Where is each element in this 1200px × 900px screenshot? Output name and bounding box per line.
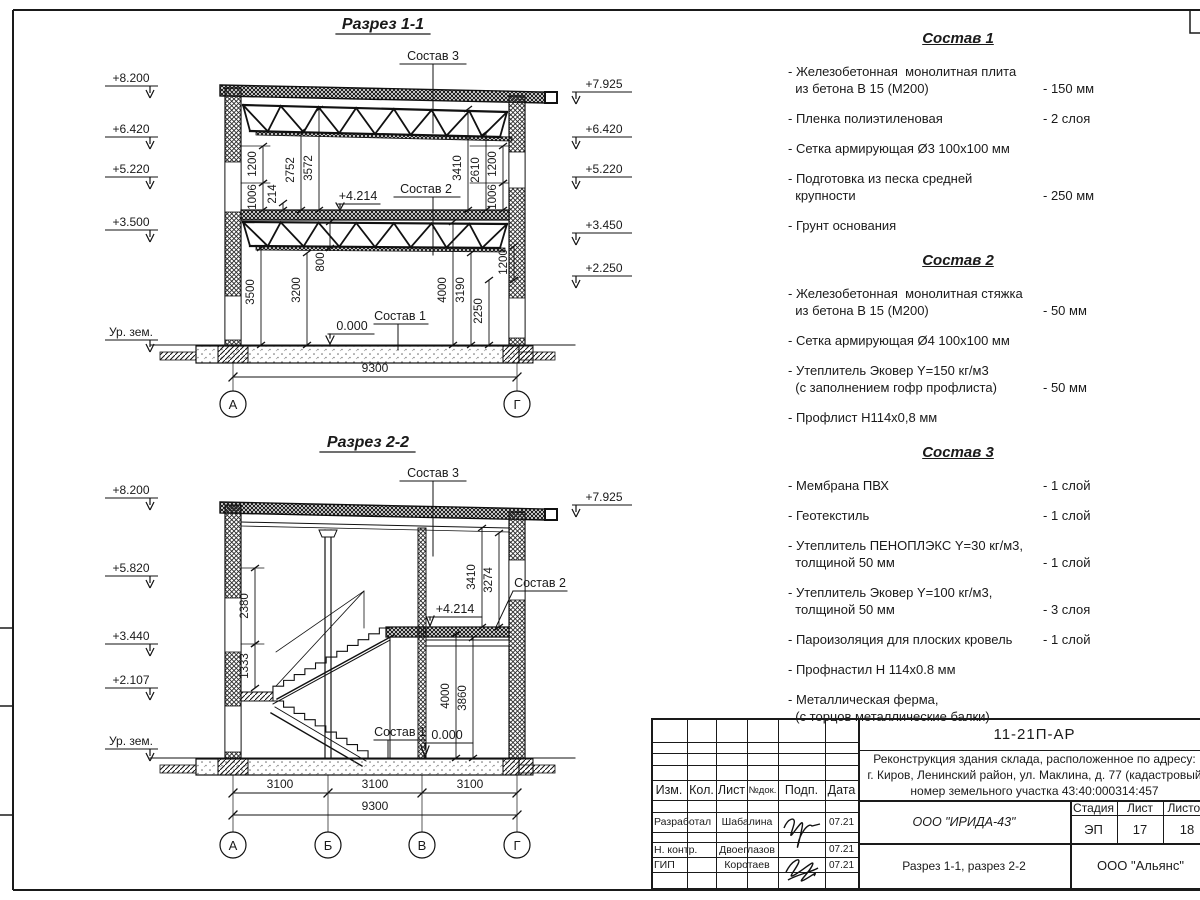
dimension-label: 3500 bbox=[245, 279, 257, 305]
grid-label: Б bbox=[324, 838, 333, 853]
elevation-mark: +3.440 bbox=[105, 629, 158, 656]
title-block-cell: Подп. bbox=[778, 780, 825, 800]
elevation-mark: +5.220 bbox=[572, 162, 632, 189]
title-block-cell: Разрез 1-1, разрез 2-2 bbox=[858, 843, 1070, 888]
composition-item: - Утеплитель Эковер Y=100 кг/м3, толщино… bbox=[788, 584, 1200, 618]
title-block-cell: 07.21 bbox=[825, 812, 858, 832]
elevation-mark: +3.450 bbox=[572, 218, 632, 245]
callout-sostav1: Состав 1 bbox=[374, 725, 426, 739]
roof-edge-cap bbox=[545, 92, 557, 103]
grid-bubble: Г bbox=[504, 391, 530, 417]
title-block-cell: Лист bbox=[1117, 800, 1163, 815]
dimension-label: 214 bbox=[267, 184, 279, 204]
item-value: - 150 мм bbox=[1043, 80, 1094, 97]
signature bbox=[786, 860, 818, 881]
title-block-cell: 11-21П-АР bbox=[858, 718, 1200, 750]
elevation-mark: +6.420 bbox=[572, 122, 632, 149]
item-name: - Мембрана ПВХ bbox=[788, 477, 889, 494]
elevation-label: +5.220 bbox=[112, 162, 149, 176]
title-block: Изм.Кол.Лист№док.Подп.ДатаРазработалШаба… bbox=[651, 718, 1200, 890]
title-block-cell: Лист bbox=[716, 780, 747, 800]
section-title: Разрез 2-2 bbox=[327, 434, 409, 451]
roof-slab bbox=[220, 502, 545, 520]
level-zero: 0.000 bbox=[336, 319, 367, 333]
elevation-label: +7.925 bbox=[585, 77, 622, 91]
composition-item: - Утеплитель Эковер Y=150 кг/м3 (с запол… bbox=[788, 362, 1200, 396]
dimension-label: 1200 bbox=[498, 249, 510, 275]
item-name: - Профлист Н114х0,8 мм bbox=[788, 409, 937, 426]
item-value: - 1 слой bbox=[1043, 554, 1091, 571]
item-value: - 50 мм bbox=[1043, 302, 1087, 319]
dimension-label: 3410 bbox=[452, 155, 464, 181]
title-block-line bbox=[651, 765, 858, 766]
grid-label: А bbox=[229, 397, 238, 412]
title-block-cell: ГИП bbox=[651, 857, 719, 873]
elevation-label: Ур. зем. bbox=[109, 734, 153, 748]
elevation-label: +3.500 bbox=[112, 215, 149, 229]
item-value: - 250 мм bbox=[1043, 187, 1094, 204]
slab-edge bbox=[519, 765, 555, 773]
span-dimension: 3100 bbox=[457, 777, 484, 791]
composition-lists: Состав 1- Железобетонная монолитная плит… bbox=[788, 30, 1200, 738]
item-name: - Подготовка из песка средней крупности bbox=[788, 170, 972, 204]
title-block-cell: Н. контр. bbox=[651, 842, 719, 857]
grid-label: В bbox=[418, 838, 427, 853]
item-value: - 50 мм bbox=[1043, 379, 1087, 396]
project-line: номер земельного участка 43:40:000314:45… bbox=[910, 783, 1158, 799]
grid-bubble: А bbox=[220, 832, 246, 858]
total-dimension: 9300 bbox=[362, 361, 389, 375]
elevation-mark: +7.925 bbox=[572, 77, 632, 104]
callout-sostav1: Состав 1 bbox=[374, 309, 426, 323]
total-dimension: 9300 bbox=[362, 799, 389, 813]
item-name: - Железобетонная монолитная плита из бет… bbox=[788, 63, 1016, 97]
title-block-cell: Кол. bbox=[687, 780, 716, 800]
section-1-1: Разрез 1-1 Состав 3 Состав 2 bbox=[150, 16, 575, 391]
composition-item: - Мембрана ПВХ- 1 слой bbox=[788, 477, 1200, 494]
composition-item: - Сетка армирующая Ø3 100х100 мм bbox=[788, 140, 1200, 157]
dimension: 3190 bbox=[455, 250, 475, 348]
dimension-label: 1006 bbox=[247, 184, 259, 210]
title-block-line bbox=[651, 800, 858, 801]
elevation-mark: +8.200 bbox=[105, 71, 158, 98]
slab-edge bbox=[160, 765, 196, 773]
composition-block: Состав 2- Железобетонная монолитная стяж… bbox=[788, 252, 1200, 426]
item-value: - 3 слоя bbox=[1043, 601, 1090, 618]
signatures bbox=[778, 810, 825, 886]
item-value: - 2 слоя bbox=[1043, 110, 1090, 127]
item-name: - Профнастил Н 114х0.8 мм bbox=[788, 661, 956, 678]
elevation-label: +5.820 bbox=[112, 561, 149, 575]
composition-item: - Подготовка из песка средней крупности-… bbox=[788, 170, 1200, 204]
elevation-mark: +2.250 bbox=[572, 261, 632, 288]
elevation-mark: +6.420 bbox=[105, 122, 158, 149]
title-block-line bbox=[651, 832, 858, 833]
item-name: - Утеплитель Эковер Y=100 кг/м3, толщино… bbox=[788, 584, 992, 618]
grid-bubble: Г bbox=[504, 832, 530, 858]
composition-title: Состав 1 bbox=[788, 30, 1128, 47]
dimension-label: 800 bbox=[315, 252, 327, 271]
composition-item: - Профнастил Н 114х0.8 мм bbox=[788, 661, 1200, 678]
level-zero: 0.000 bbox=[431, 728, 462, 742]
title-block-cell: Двоеглазов bbox=[716, 842, 778, 857]
interior-wall bbox=[418, 528, 426, 758]
section-title: Разрез 1-1 bbox=[342, 16, 424, 33]
slab-edge bbox=[160, 352, 196, 360]
grid-bubble: А bbox=[220, 391, 246, 417]
project-description: Реконструкция здания склада, расположенн… bbox=[858, 750, 1200, 800]
dimension-label: 3572 bbox=[303, 155, 315, 181]
composition-item: - Профлист Н114х0,8 мм bbox=[788, 409, 1200, 426]
elevation-label: +7.925 bbox=[585, 490, 622, 504]
elevation-label: +5.220 bbox=[585, 162, 622, 176]
dimension: 3500 bbox=[245, 245, 265, 348]
title-block-cell: ЭП bbox=[1070, 815, 1117, 843]
wall-right bbox=[509, 512, 525, 758]
roof-slab bbox=[220, 85, 545, 103]
title-block-cell: Дата bbox=[825, 780, 858, 800]
elevation-label: +3.450 bbox=[585, 218, 622, 232]
title-block-cell: ООО "Альянс" bbox=[1070, 843, 1200, 888]
composition-item: - Утеплитель ПЕНОПЛЭКС Y=30 кг/м3, толщи… bbox=[788, 537, 1200, 571]
staircase bbox=[241, 591, 394, 766]
callout-sostav2: Состав 2 bbox=[514, 576, 566, 590]
dimension-label: 3190 bbox=[455, 277, 467, 303]
elevation-label: +8.200 bbox=[112, 71, 149, 85]
wall-opening bbox=[225, 706, 241, 752]
item-name: - Утеплитель ПЕНОПЛЭКС Y=30 кг/м3, толщи… bbox=[788, 537, 1023, 571]
title-block-cell: Листов bbox=[1163, 800, 1200, 815]
elevation-mark: Ур. зем. bbox=[105, 325, 158, 352]
grid-bubble: Б bbox=[315, 832, 341, 858]
item-name: - Геотекстиль bbox=[788, 507, 869, 524]
signature bbox=[784, 819, 820, 847]
dimension-label: 1006 bbox=[487, 184, 499, 210]
dimension-label: 1333 bbox=[239, 653, 251, 679]
elevation-mark: +2.107 bbox=[105, 673, 158, 700]
composition-item: - Грунт основания bbox=[788, 217, 1200, 234]
dimension: 3274 bbox=[483, 530, 503, 630]
level-mid: +4.214 bbox=[339, 189, 378, 203]
elevation-label: +6.420 bbox=[112, 122, 149, 136]
composition-item: - Железобетонная монолитная стяжка из бе… bbox=[788, 285, 1200, 319]
item-name: - Железобетонная монолитная стяжка из бе… bbox=[788, 285, 1023, 319]
composition-title: Состав 3 bbox=[788, 444, 1128, 461]
elevation-label: +3.440 bbox=[112, 629, 149, 643]
dimension: 1333 bbox=[239, 641, 259, 691]
interior-column bbox=[319, 530, 337, 758]
level-mid: +4.214 bbox=[436, 602, 475, 616]
title-block-line bbox=[651, 742, 858, 743]
grid-label: Г bbox=[513, 397, 520, 412]
stair-rail bbox=[276, 591, 364, 686]
composition-item: - Сетка армирующая Ø4 100х100 мм bbox=[788, 332, 1200, 349]
floor-beam bbox=[426, 640, 509, 646]
item-name: - Грунт основания bbox=[788, 217, 896, 234]
dimension-label: 2380 bbox=[239, 593, 251, 619]
elevation-label: Ур. зем. bbox=[109, 325, 153, 339]
title-block-cell: ООО "ИРИДА-43" bbox=[858, 800, 1070, 843]
dimension: 214 bbox=[267, 184, 287, 213]
item-name: - Утеплитель Эковер Y=150 кг/м3 (с запол… bbox=[788, 362, 997, 396]
stair-rail bbox=[276, 591, 364, 652]
dimension: 3860 bbox=[457, 635, 477, 761]
item-name: - Сетка армирующая Ø3 100х100 мм bbox=[788, 140, 1010, 157]
grid-label: Г bbox=[513, 838, 520, 853]
composition-item: - Пароизоляция для плоских кровель- 1 сл… bbox=[788, 631, 1200, 648]
dimension: 1006 bbox=[487, 180, 507, 213]
composition-title: Состав 2 bbox=[788, 252, 1128, 269]
dimension-label: 2250 bbox=[473, 298, 485, 324]
wall-opening bbox=[225, 296, 241, 340]
dimension-label: 2610 bbox=[470, 157, 482, 183]
section-2-2: Разрез 2-2 bbox=[150, 434, 575, 832]
title-block-cell: 17 bbox=[1117, 815, 1163, 843]
dimension-label: 3274 bbox=[483, 567, 495, 593]
title-block-cell: 07.21 bbox=[825, 842, 858, 857]
dimension-label: 1200 bbox=[487, 151, 499, 177]
floor-truss bbox=[243, 222, 507, 248]
composition-item: - Железобетонная монолитная плита из бет… bbox=[788, 63, 1200, 97]
item-value: - 1 слой bbox=[1043, 477, 1091, 494]
project-line: г. Киров, Ленинский район, ул. Маклина, … bbox=[867, 767, 1200, 783]
dimension: 800 bbox=[315, 219, 334, 272]
drawing-sheet: { "drawing": { "section1": { "title": "Р… bbox=[0, 0, 1200, 900]
wall-opening bbox=[509, 152, 525, 188]
title-block-line bbox=[651, 888, 1200, 890]
dimension-label: 1200 bbox=[247, 151, 259, 177]
dimension: 3200 bbox=[291, 250, 311, 348]
wall-opening bbox=[509, 298, 525, 338]
span-dimension: 3100 bbox=[362, 777, 389, 791]
elevation-label: +2.250 bbox=[585, 261, 622, 275]
elevation-mark: +3.500 bbox=[105, 215, 158, 242]
item-value: - 1 слой bbox=[1043, 507, 1091, 524]
title-block-cell: Изм. bbox=[651, 780, 687, 800]
dimension: 3572 bbox=[303, 106, 323, 213]
slab-edge bbox=[519, 352, 555, 360]
composition-block: Состав 1- Железобетонная монолитная плит… bbox=[788, 30, 1200, 234]
truss-bottom-chord-plate bbox=[256, 131, 512, 141]
dimension-label: 3200 bbox=[291, 277, 303, 303]
composition-item: - Геотекстиль- 1 слой bbox=[788, 507, 1200, 524]
callout-sostav3: Состав 3 bbox=[407, 49, 459, 63]
composition-block: Состав 3- Мембрана ПВХ- 1 слой- Геотекст… bbox=[788, 444, 1200, 725]
dimension: 1006 bbox=[247, 180, 267, 213]
dimension-label: 4000 bbox=[437, 277, 449, 303]
mid-floor-slab bbox=[386, 627, 509, 637]
callout-sostav3: Состав 3 bbox=[407, 466, 459, 480]
item-name: - Пленка полиэтиленовая bbox=[788, 110, 943, 127]
elevation-label: +8.200 bbox=[112, 483, 149, 497]
grid-bubble: В bbox=[409, 832, 435, 858]
composition-item: - Пленка полиэтиленовая- 2 слоя bbox=[788, 110, 1200, 127]
title-block-cell: Шабалина bbox=[716, 812, 778, 832]
grid-label: А bbox=[229, 838, 238, 853]
title-block-line bbox=[651, 753, 858, 754]
elevation-mark: +5.820 bbox=[105, 561, 158, 588]
footing bbox=[218, 346, 248, 363]
item-value: - 1 слой bbox=[1043, 631, 1091, 648]
elevation-mark: Ур. зем. bbox=[105, 734, 158, 761]
elevation-label: +6.420 bbox=[585, 122, 622, 136]
title-block-cell: 18 bbox=[1163, 815, 1200, 843]
project-line: Реконструкция здания склада, расположенн… bbox=[873, 751, 1195, 767]
dimension: 1200 bbox=[247, 143, 267, 186]
title-block-cell: Разработал bbox=[651, 812, 719, 832]
dimension-label: 3410 bbox=[466, 564, 478, 590]
dimension: 2380 bbox=[239, 565, 259, 647]
dimension-label: 4000 bbox=[440, 683, 452, 709]
footing bbox=[218, 759, 248, 775]
elevation-label: +2.107 bbox=[112, 673, 149, 687]
dimension: 2250 bbox=[473, 277, 493, 348]
dimension: 2752 bbox=[285, 129, 305, 213]
callout-sostav2: Состав 2 bbox=[400, 182, 452, 196]
elevation-mark: +8.200 bbox=[105, 483, 158, 510]
item-name: - Пароизоляция для плоских кровель bbox=[788, 631, 1012, 648]
title-block-cell: №док. bbox=[747, 780, 778, 800]
elevation-mark: +5.220 bbox=[105, 162, 158, 189]
elevation-mark: +7.925 bbox=[572, 490, 632, 517]
item-name: - Сетка армирующая Ø4 100х100 мм bbox=[788, 332, 1010, 349]
title-block-cell: Коротаев bbox=[716, 857, 778, 873]
dimension-label: 2752 bbox=[285, 157, 297, 183]
dimension-label: 3860 bbox=[457, 685, 469, 711]
roof-edge-cap bbox=[545, 509, 557, 520]
span-dimension: 3100 bbox=[267, 777, 294, 791]
wall-opening bbox=[225, 162, 241, 212]
title-block-cell: Стадия bbox=[1070, 800, 1117, 815]
stair-landing bbox=[241, 692, 273, 701]
title-block-cell: 07.21 bbox=[825, 857, 858, 873]
dimension: 1200 bbox=[487, 143, 507, 186]
